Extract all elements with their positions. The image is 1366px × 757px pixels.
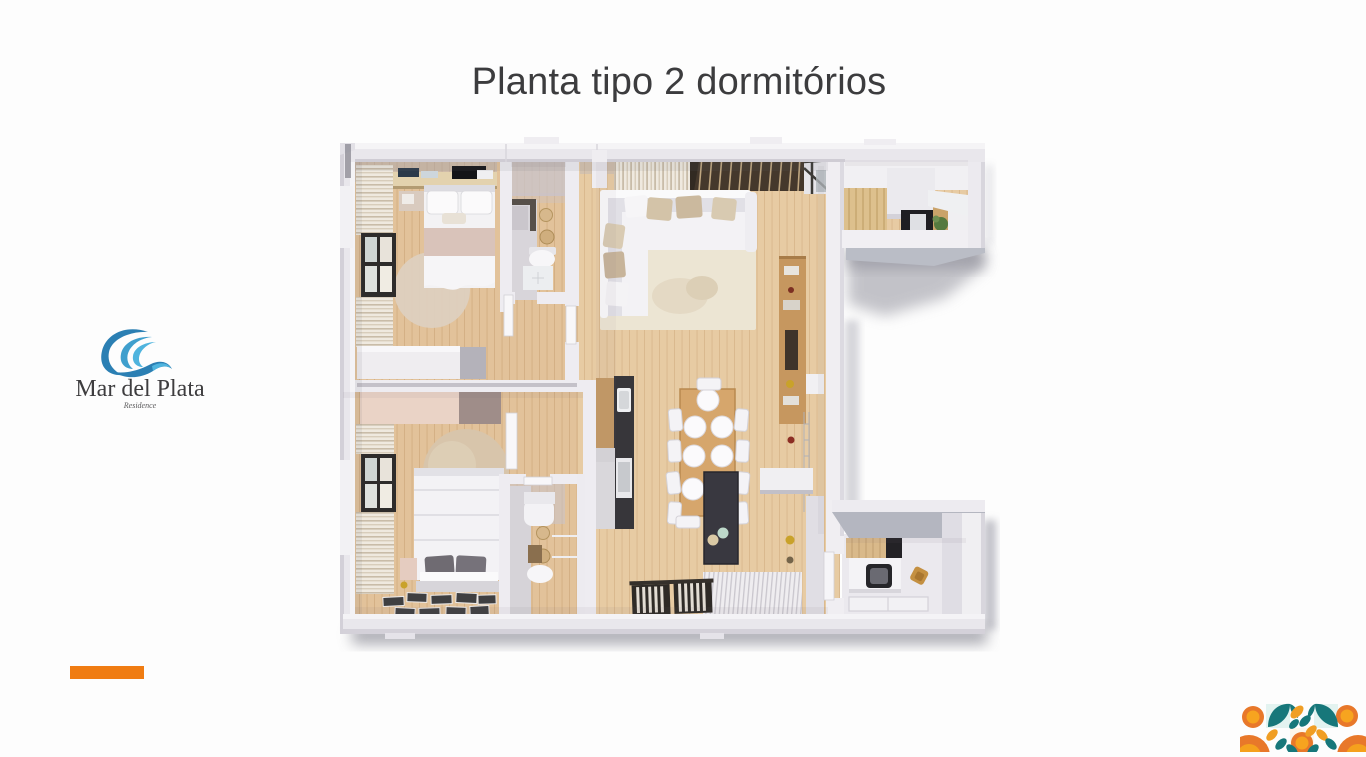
svg-text:Mar del Plata: Mar del Plata [75, 376, 205, 402]
svg-text:Residence: Residence [123, 401, 157, 410]
